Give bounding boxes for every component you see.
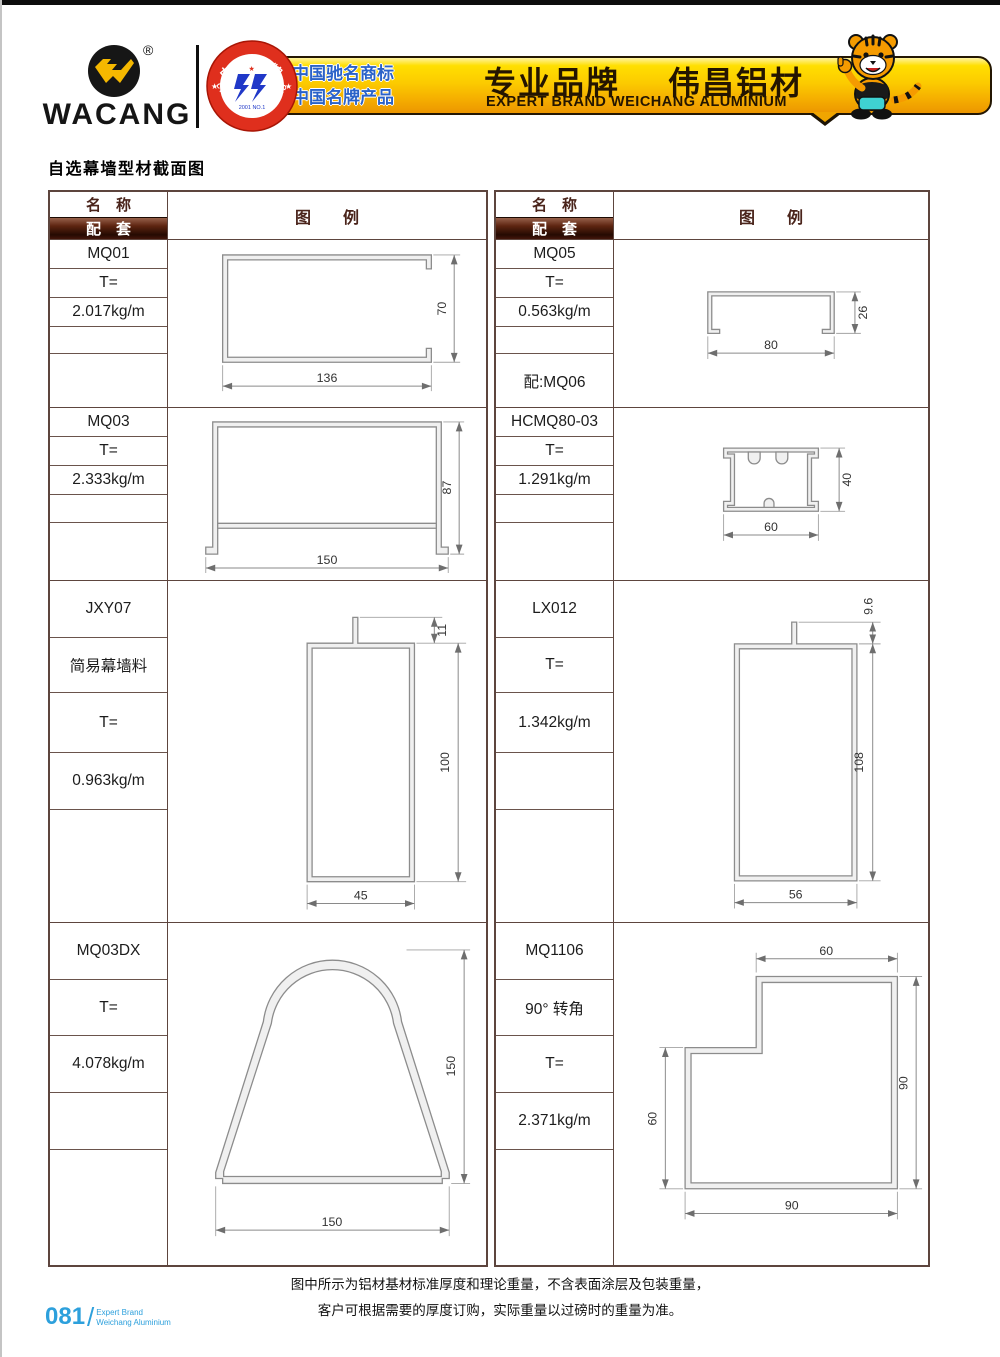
profile-drawing-cell: 11 100 45 <box>168 581 486 922</box>
profile-drawing-lx012: 9.6 108 56 <box>614 581 928 922</box>
header-legend-label: 图 例 <box>614 192 928 239</box>
profile-weight: 4.078kg/m <box>50 1036 167 1093</box>
profile-drawing-jxy07: 11 100 45 <box>168 581 486 922</box>
dim-width: 150 <box>317 553 338 567</box>
profile-name: MQ1106 <box>496 923 613 980</box>
profile-name: MQ03 <box>50 408 167 437</box>
dim-fin: 9.6 <box>862 598 876 615</box>
profile-drawing-mq03dx: 150 150 <box>168 923 486 1265</box>
profile-section-mq05: MQ05 T= 0.563kg/m 配:MQ06 26 80 <box>496 240 928 408</box>
wacang-w-icon <box>87 44 141 98</box>
profile-weight: 2.371kg/m <box>496 1093 613 1150</box>
dim-width: 80 <box>764 338 778 352</box>
dim-width: 60 <box>764 520 778 534</box>
profile-drawing-cell: 150 150 <box>168 923 486 1265</box>
empty-cell <box>50 1093 167 1150</box>
profile-name: MQ03DX <box>50 923 167 980</box>
profile-desc: 90° 转角 <box>496 980 613 1036</box>
caption-line-1: Expert Brand <box>96 1308 143 1317</box>
profile-table-left: 名 称 配 套 图 例 MQ01 T= 2.017kg/m <box>48 190 488 1267</box>
dim-width: 150 <box>322 1215 343 1229</box>
profile-drawing-cell: 87 150 <box>168 408 486 580</box>
banner-subtitle: EXPERT BRAND WEICHANG ALUMINIUM <box>486 94 816 110</box>
footnote-line-1: 图中所示为铝材基材标准厚度和理论重量，不含表面涂层及包装重量， <box>0 1272 1000 1298</box>
table-header-right: 名 称 配 套 图 例 <box>496 192 928 240</box>
empty-cell <box>496 753 613 810</box>
empty-cell <box>496 327 613 354</box>
claim-line-1: 中国驰名商标 <box>292 62 394 86</box>
empty-cell <box>496 1150 613 1265</box>
profile-drawing-mq1106: 60 90 60 90 <box>614 923 928 1265</box>
profile-drawing-mq03: 87 150 <box>168 408 486 580</box>
page-left-edge <box>0 0 2 1357</box>
profile-thickness: T= <box>496 437 613 466</box>
page-number-caption: Expert Brand Weichang Aluminium <box>96 1305 171 1328</box>
claim-line-2: 中国名牌产品 <box>292 86 394 110</box>
badge-star-left: ★ <box>211 82 218 91</box>
dim-height: 90 <box>896 1076 910 1090</box>
registered-mark: ® <box>143 42 153 58</box>
profile-thickness: T= <box>496 638 613 693</box>
profile-drawing-cell: 26 80 <box>614 240 928 407</box>
empty-cell <box>50 523 167 580</box>
profile-desc: 简易幕墙料 <box>50 638 167 693</box>
profile-name: JXY07 <box>50 581 167 638</box>
profile-weight: 1.291kg/m <box>496 466 613 495</box>
empty-cell <box>496 810 613 922</box>
dim-height: 40 <box>840 473 854 487</box>
dim-height: 70 <box>435 302 449 316</box>
table-header-left: 名 称 配 套 图 例 <box>50 192 486 240</box>
empty-cell <box>50 354 167 407</box>
banner-claims: 中国驰名商标 中国名牌产品 <box>292 62 464 110</box>
profile-thickness: T= <box>50 269 167 298</box>
header-name-label: 名 称 <box>496 192 613 217</box>
profile-weight: 0.963kg/m <box>50 753 167 810</box>
tiger-mascot-icon <box>818 26 930 120</box>
dim-left: 60 <box>645 1112 659 1126</box>
profile-section-mq01: MQ01 T= 2.017kg/m 70 136 <box>50 240 486 408</box>
page-number: 081 / Expert Brand Weichang Aluminium <box>45 1305 171 1329</box>
header-legend-label: 图 例 <box>168 192 486 239</box>
empty-cell <box>50 495 167 523</box>
dim-width: 45 <box>354 889 368 903</box>
badge-star-center: ★ <box>249 65 255 73</box>
dim-height: 26 <box>856 306 870 320</box>
dim-width: 56 <box>789 888 803 902</box>
page-top-border <box>0 0 1000 5</box>
dim-top: 60 <box>819 944 833 958</box>
catalog-page: ® WACANG 中国驰名商标 中国名牌产品 专业品牌伟昌铝材 EXPERT B… <box>0 0 1000 1357</box>
dim-height: 108 <box>852 752 866 773</box>
badge-star-right: ★ <box>285 82 292 91</box>
profile-weight: 2.333kg/m <box>50 466 167 495</box>
header-name-label: 名 称 <box>50 192 167 217</box>
profile-drawing-cell: 9.6 108 56 <box>614 581 928 922</box>
page-number-value: 081 <box>45 1305 85 1329</box>
header-match-label: 配 套 <box>50 217 167 239</box>
profile-thickness: T= <box>50 437 167 466</box>
dim-width: 136 <box>317 371 338 385</box>
profile-section-mq03: MQ03 T= 2.333kg/m 87 150 <box>50 408 486 581</box>
profile-section-mq1106: MQ1106 90° 转角 T= 2.371kg/m 60 <box>496 923 928 1265</box>
empty-cell <box>50 1150 167 1265</box>
dim-height: 100 <box>438 752 452 773</box>
empty-cell <box>50 327 167 354</box>
china-top-brand-badge-icon: 中国名牌 CHINA TOP BRAND ★ ★ ★ 2001 NO.1 <box>204 38 300 134</box>
profile-weight: 0.563kg/m <box>496 298 613 327</box>
empty-cell <box>50 810 167 922</box>
profile-drawing-mq01: 70 136 <box>168 240 486 407</box>
brand-name: WACANG <box>37 98 197 132</box>
page-number-divider: / <box>87 1305 94 1329</box>
dim-height: 150 <box>444 1056 458 1077</box>
badge-small-text: 2001 NO.1 <box>239 105 266 111</box>
empty-cell <box>496 495 613 523</box>
empty-cell <box>496 523 613 580</box>
profile-drawing-cell: 60 90 60 90 <box>614 923 928 1265</box>
profile-drawing-cell: 40 60 <box>614 408 928 580</box>
profile-match: 配:MQ06 <box>496 354 613 407</box>
dim-height: 87 <box>440 481 454 495</box>
caption-line-2: Weichang Aluminium <box>96 1318 171 1327</box>
profile-thickness: T= <box>50 980 167 1036</box>
profile-tables: 名 称 配 套 图 例 MQ01 T= 2.017kg/m <box>48 190 930 1267</box>
profile-weight: 1.342kg/m <box>496 693 613 753</box>
dim-fin: 11 <box>435 624 449 637</box>
profile-thickness: T= <box>496 269 613 298</box>
profile-section-jxy07: JXY07 简易幕墙料 T= 0.963kg/m 11 100 <box>50 581 486 923</box>
profile-weight: 2.017kg/m <box>50 298 167 327</box>
profile-table-right: 名 称 配 套 图 例 MQ05 T= 0.563kg/m 配:MQ06 <box>494 190 930 1267</box>
profile-name: HCMQ80-03 <box>496 408 613 437</box>
profile-name: MQ01 <box>50 240 167 269</box>
page-title: 自选幕墙型材截面图 <box>48 155 206 179</box>
profile-section-lx012: LX012 T= 1.342kg/m 9.6 108 5 <box>496 581 928 923</box>
header-divider <box>196 45 199 128</box>
dim-width: 90 <box>785 1199 799 1213</box>
wacang-logo: ® WACANG <box>37 42 197 132</box>
profile-section-hcmq80-03: HCMQ80-03 T= 1.291kg/m 40 <box>496 408 928 581</box>
profile-drawing-hcmq80-03: 40 60 <box>614 408 928 580</box>
header-match-label: 配 套 <box>496 217 613 239</box>
profile-thickness: T= <box>496 1036 613 1093</box>
profile-section-mq03dx: MQ03DX T= 4.078kg/m 150 150 <box>50 923 486 1265</box>
profile-name: MQ05 <box>496 240 613 269</box>
profile-thickness: T= <box>50 693 167 753</box>
profile-drawing-mq05: 26 80 <box>614 240 928 407</box>
profile-name: LX012 <box>496 581 613 638</box>
profile-drawing-cell: 70 136 <box>168 240 486 407</box>
